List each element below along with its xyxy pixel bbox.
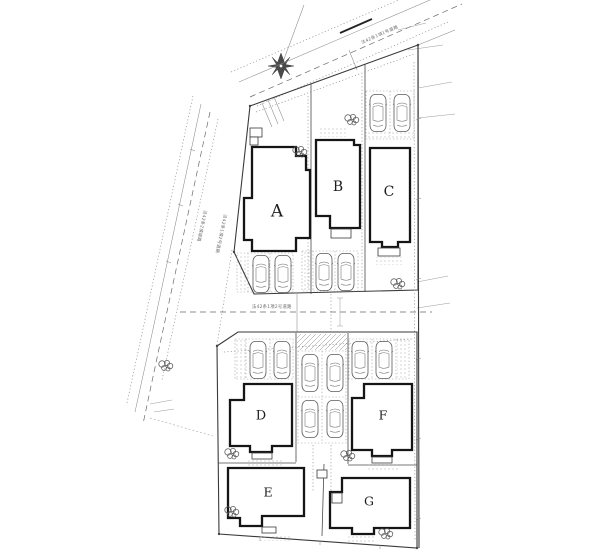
- top-road-label: 法42条1項1号道路: [360, 23, 399, 46]
- driveway-hatch: [297, 334, 347, 350]
- car-icon: [393, 95, 411, 132]
- north-arrow-icon: [268, 5, 304, 79]
- car-icon: [326, 401, 344, 438]
- lot-label-C: C: [384, 184, 395, 200]
- car-icon: [351, 342, 369, 379]
- site-plan-drawing: 法42条1項1号道路 法42条2項道路 法42条1項2号道路 法42条1項2号道…: [0, 0, 600, 560]
- left-road-outer-label: 法42条2項道路: [195, 210, 209, 243]
- lot-label-F: F: [379, 408, 388, 423]
- top-road: 法42条1項1号道路: [231, 0, 462, 127]
- car-icon: [315, 254, 333, 291]
- building-A: [244, 147, 310, 251]
- middle-road: 法42条1項2号道路: [180, 276, 450, 332]
- top-road-leaders: [398, 23, 443, 50]
- tree-icon: [391, 278, 405, 289]
- lot-label-D: D: [256, 409, 266, 424]
- lot-label-B: B: [333, 179, 343, 195]
- car-icon: [301, 355, 319, 392]
- car-icon: [273, 342, 291, 379]
- lot-label-E: E: [263, 485, 272, 500]
- lot-label-A: A: [270, 202, 284, 222]
- car-icon: [252, 256, 270, 293]
- tree-icon: [379, 528, 393, 539]
- car-icon: [301, 401, 319, 438]
- car-icon: [369, 95, 387, 132]
- left-road-inner-label: 法42条1項2号道路: [214, 214, 229, 255]
- car-icon: [249, 342, 267, 379]
- site-plan-page: 法42条1項1号道路 法42条2項道路 法42条1項2号道路 法42条1項2号道…: [0, 0, 600, 560]
- car-icon: [274, 256, 292, 293]
- middle-road-leaders: [417, 276, 450, 308]
- right-boundary: [414, 45, 455, 548]
- car-icon: [337, 254, 355, 291]
- road-end-marks: [150, 400, 213, 436]
- middle-road-label: 法42条1項2号道路: [252, 303, 292, 310]
- tree-icon: [345, 114, 359, 125]
- lot-label-G: G: [364, 494, 374, 509]
- car-icon: [326, 355, 344, 392]
- car-icon: [375, 342, 393, 379]
- tree-icon: [225, 448, 239, 459]
- left-road: 法42条2項道路 法42条1項2号道路: [127, 96, 232, 436]
